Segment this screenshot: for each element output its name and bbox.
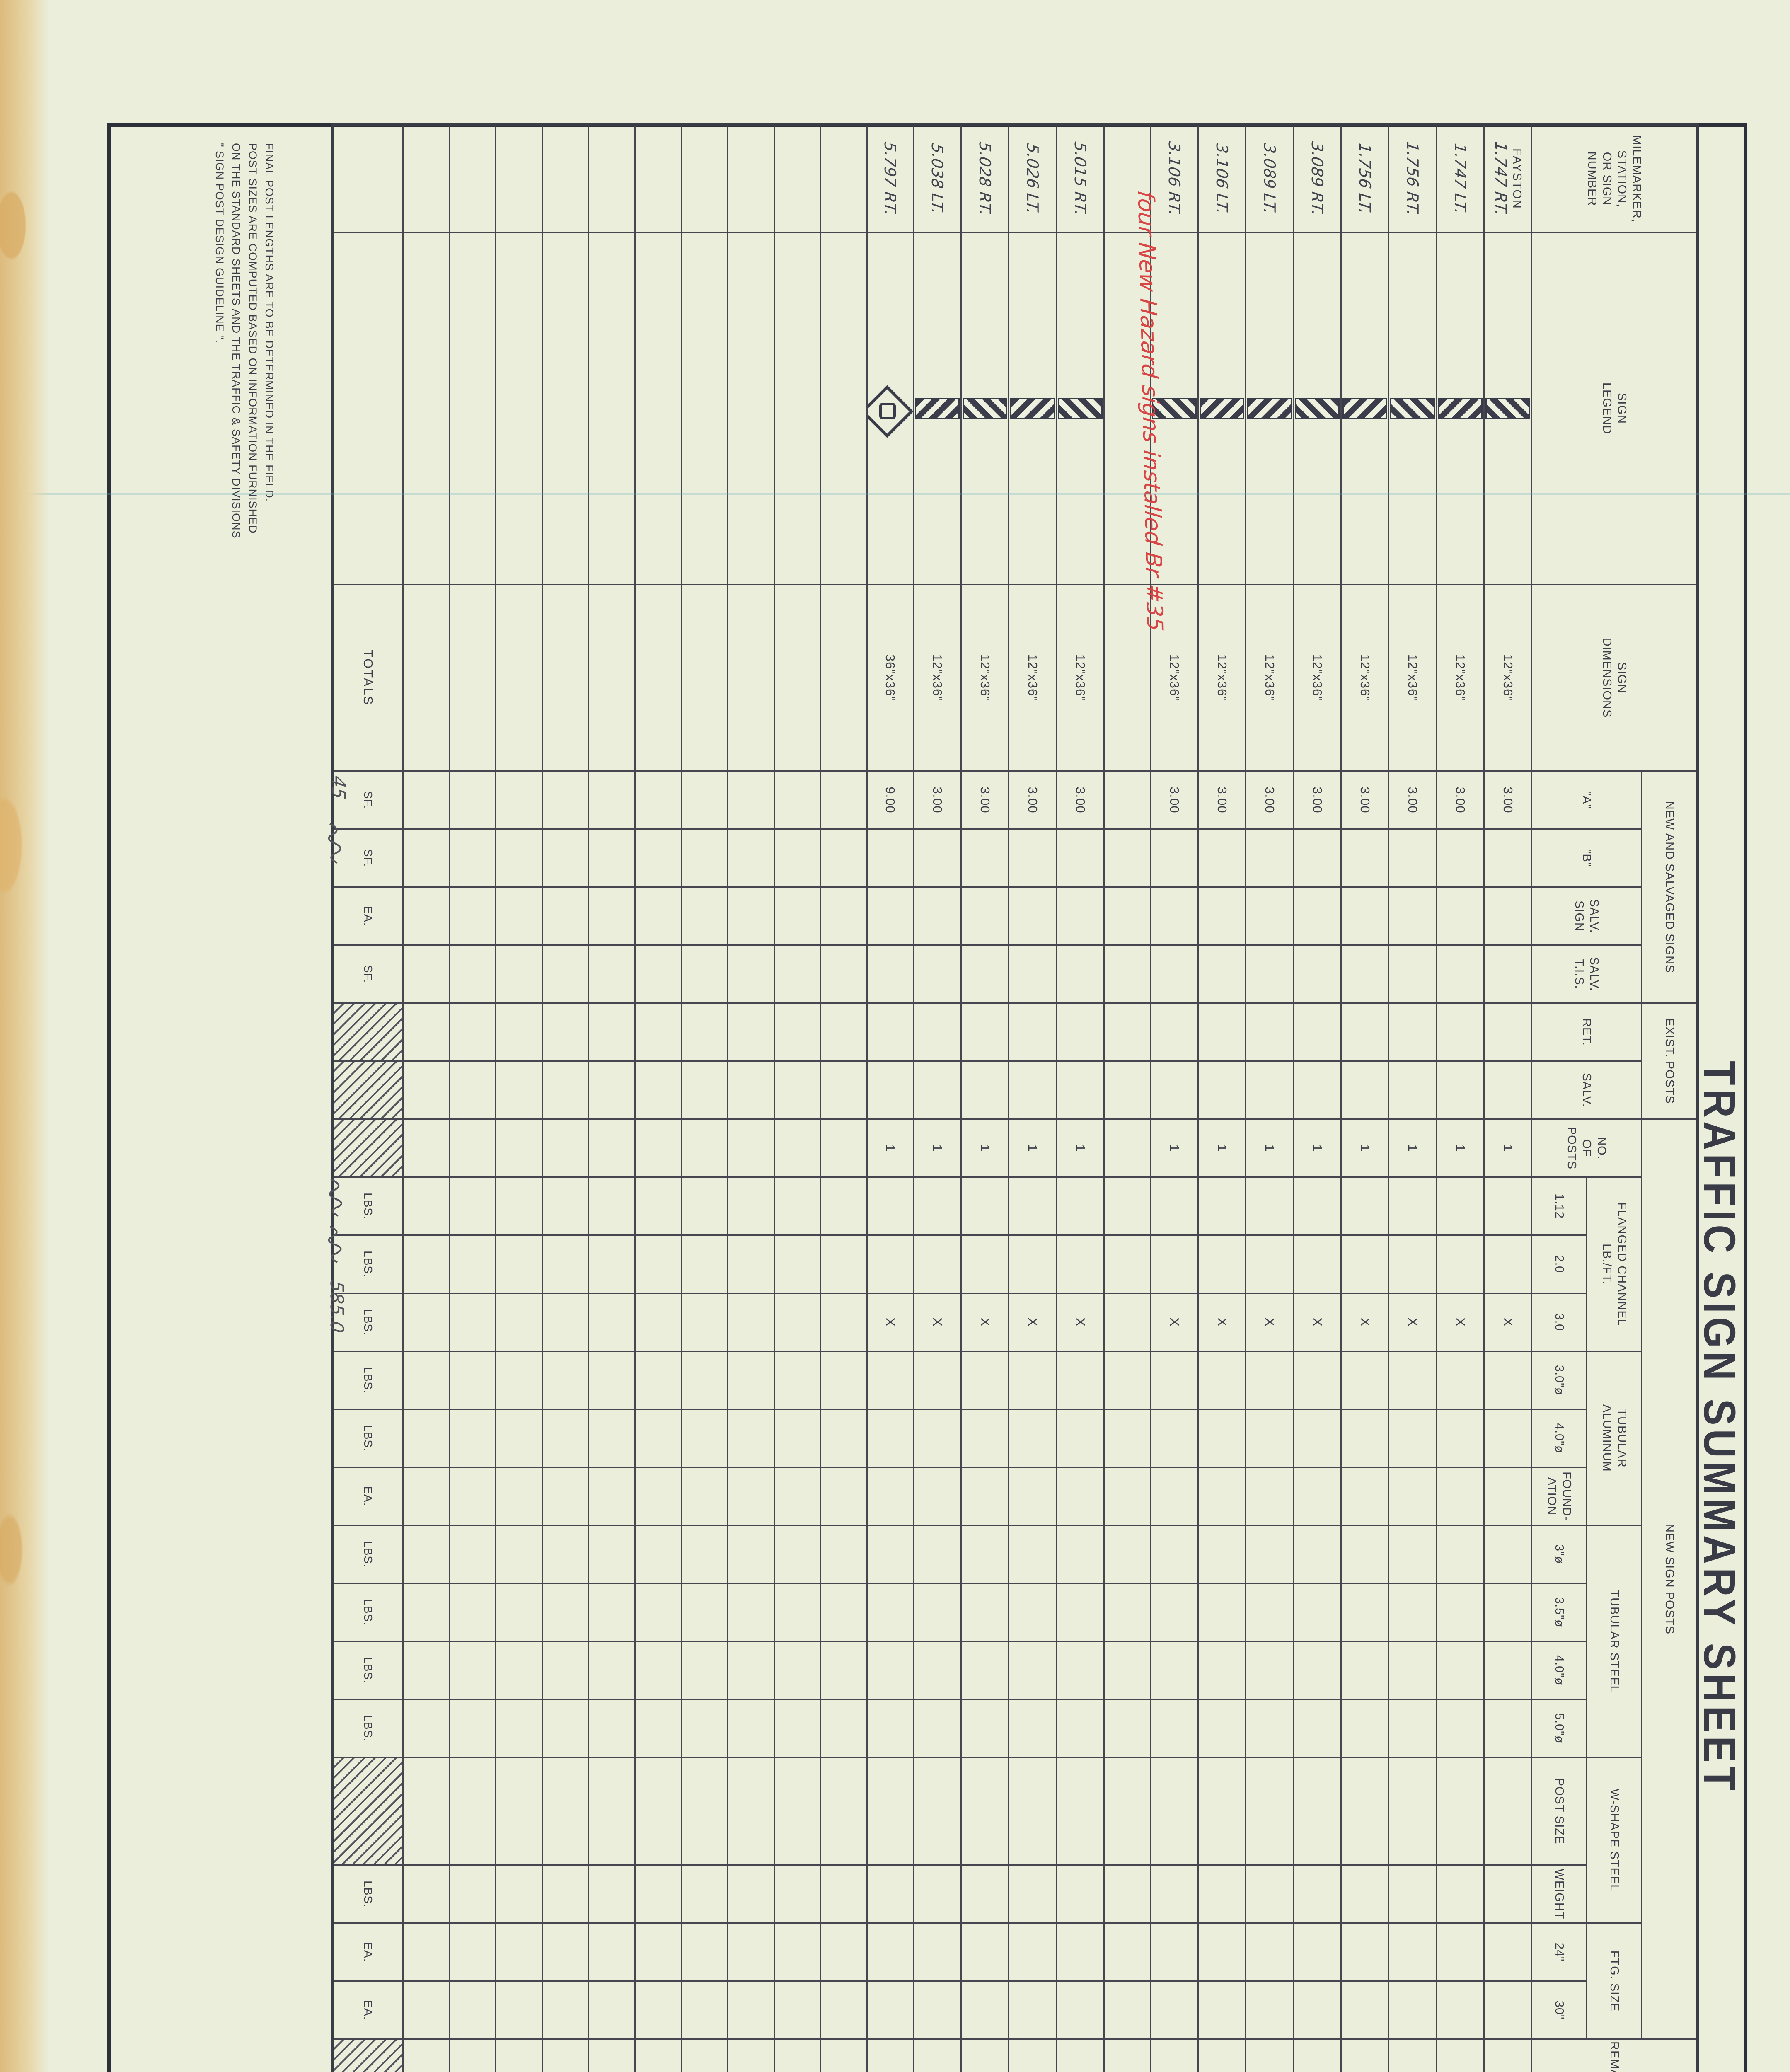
- town-label: FAYSTON: [1510, 128, 1524, 230]
- hazard-marker-icon: [1200, 398, 1244, 419]
- cell-post_size: [728, 1757, 774, 1865]
- hazard-marker-icon: [963, 398, 1007, 419]
- cell-nop: 1: [914, 1119, 961, 1177]
- col-ftg-30: 30": [1532, 1981, 1587, 2039]
- cell-mm: 1.756 RT.: [1389, 125, 1437, 232]
- cell-st40: [403, 1641, 450, 1699]
- table-row: [774, 125, 821, 2072]
- cell-post_size: [1057, 1757, 1104, 1865]
- cell-found: [496, 1467, 542, 1525]
- cell-st3: [1294, 1525, 1341, 1583]
- cell-post_size: [914, 1757, 961, 1865]
- cell-salv: [1294, 1061, 1341, 1119]
- cell-a: [682, 771, 728, 829]
- cell-mm: FAYSTON1.747 RT.: [1484, 125, 1532, 232]
- cell-st35: [450, 1583, 496, 1641]
- cell-st35: [914, 1583, 961, 1641]
- cell-salv_sign: [635, 887, 682, 945]
- cell-salv_tis: [682, 945, 728, 1003]
- cell-fc30: [542, 1293, 589, 1351]
- cell-mm: 3.106 LT.: [1198, 125, 1246, 232]
- cell-al40: [821, 1409, 867, 1467]
- cell-salv_tis: [821, 945, 867, 1003]
- cell-st35: [682, 1583, 728, 1641]
- cell-mm: [403, 125, 450, 232]
- cell-a: 3.00: [914, 771, 961, 829]
- cell-ftg30: [1057, 1981, 1104, 2039]
- cell-legend: [403, 232, 450, 585]
- cell-st35: [589, 1583, 635, 1641]
- totals-cell-post_size: [333, 1757, 403, 1865]
- note-line: FINAL POST LENGTHS ARE TO BE DETERMINED …: [261, 143, 278, 539]
- cell-al40: [867, 1409, 914, 1467]
- cell-st40: [728, 1641, 774, 1699]
- cell-fc30: X: [1246, 1293, 1294, 1351]
- cell-fc20: [1151, 1235, 1198, 1293]
- cell-weight: [635, 1865, 682, 1923]
- cell-fc20: [774, 1235, 821, 1293]
- cell-fc112: [682, 1177, 728, 1235]
- group-w-shape-steel: W-SHAPE STEEL: [1587, 1757, 1642, 1923]
- cell-legend: [1389, 232, 1437, 585]
- cell-st50: [867, 1699, 914, 1757]
- cell-salv_sign: [1104, 887, 1151, 945]
- cell-fc20: [961, 1235, 1009, 1293]
- page-title: TRAFFIC SIGN SUMMARY SHEET: [1693, 1061, 1744, 1794]
- cell-ftg30: [496, 1981, 542, 2039]
- cell-st3: [821, 1525, 867, 1583]
- cell-fc112: [867, 1177, 914, 1235]
- group-new-and-salvaged-signs: NEW AND SALVAGED SIGNS: [1642, 771, 1698, 1003]
- table-row: 3.106 LT.12"x36"3.001XE120: [1198, 125, 1246, 2072]
- cell-mm: [496, 125, 542, 232]
- cell-legend: [589, 232, 635, 585]
- cell-st50: [1484, 1699, 1532, 1757]
- cell-st35: [1198, 1583, 1246, 1641]
- cell-post_size: [1484, 1757, 1532, 1865]
- cell-st50: [728, 1699, 774, 1757]
- cell-ftg24: [450, 1923, 496, 1981]
- cell-ftg24: [1057, 1923, 1104, 1981]
- cell-salv_sign: [403, 887, 450, 945]
- col-ret: RET.: [1532, 1003, 1642, 1061]
- cell-weight: [1246, 1865, 1294, 1923]
- cell-ret: [682, 1003, 728, 1061]
- cell-st3: [1389, 1525, 1437, 1583]
- cell-found: [542, 1467, 589, 1525]
- cell-salv_sign: [821, 887, 867, 945]
- cell-st50: [1437, 1699, 1484, 1757]
- cell-st40: [961, 1641, 1009, 1699]
- cell-salv_sign: [774, 887, 821, 945]
- table-row: 1.756 LT.12"x36"3.001XE120: [1341, 125, 1389, 2072]
- cell-st50: [403, 1699, 450, 1757]
- totals-cell-al30: LBS.: [333, 1351, 403, 1409]
- cell-b: [496, 829, 542, 887]
- cell-post_size: [821, 1757, 867, 1865]
- cell-st50: [1104, 1699, 1151, 1757]
- cell-al30: [1341, 1351, 1389, 1409]
- cell-found: [1389, 1467, 1437, 1525]
- cell-ret: [1104, 1003, 1151, 1061]
- cell-fc20: [914, 1235, 961, 1293]
- milemarker-value: 3.106 RT.: [1165, 141, 1183, 217]
- cell-fc20: [867, 1235, 914, 1293]
- col-al-4-0: 4.0"ø: [1532, 1409, 1587, 1467]
- cell-st35: [1389, 1583, 1437, 1641]
- cell-post_size: [635, 1757, 682, 1865]
- cell-mm: [635, 125, 682, 232]
- cell-st50: [1198, 1699, 1246, 1757]
- cell-fc30: [450, 1293, 496, 1351]
- cell-frame: [1484, 2039, 1532, 2072]
- table-row: 3.089 LT.12"x36"3.001XE120: [1246, 125, 1294, 2072]
- table-row: [728, 125, 774, 2072]
- cell-frame: [542, 2039, 589, 2072]
- cell-al40: [1198, 1409, 1246, 1467]
- cell-mm: [589, 125, 635, 232]
- cell-ftg30: [1484, 1981, 1532, 2039]
- col-st-4-0: 4.0"ø: [1532, 1641, 1587, 1699]
- cell-salv_tis: [1437, 945, 1484, 1003]
- cell-found: [403, 1467, 450, 1525]
- cell-post_size: [496, 1757, 542, 1865]
- cell-salv_tis: [635, 945, 682, 1003]
- cell-legend: [542, 232, 589, 585]
- cell-al30: [1198, 1351, 1246, 1409]
- cell-frame: [867, 2039, 914, 2072]
- cell-al30: [682, 1351, 728, 1409]
- cell-a: 3.00: [1151, 771, 1198, 829]
- cell-al30: [496, 1351, 542, 1409]
- totals-cell-al40: LBS.: [333, 1409, 403, 1467]
- table-row: 1.756 RT.12"x36"3.001XE120: [1389, 125, 1437, 2072]
- cell-st40: [1389, 1641, 1437, 1699]
- cell-salv: [403, 1061, 450, 1119]
- cell-legend: [1341, 232, 1389, 585]
- cell-st50: [1389, 1699, 1437, 1757]
- cell-fc30: [682, 1293, 728, 1351]
- cell-ret: [1437, 1003, 1484, 1061]
- totals-cell-nop: [333, 1119, 403, 1177]
- cell-frame: [450, 2039, 496, 2072]
- cell-b: [961, 829, 1009, 887]
- cell-salv: [961, 1061, 1009, 1119]
- cell-ftg24: [635, 1923, 682, 1981]
- cell-dims: [821, 585, 867, 771]
- cell-found: [914, 1467, 961, 1525]
- totals-cell-dims: TOTALS: [333, 585, 403, 771]
- cell-ftg24: [867, 1923, 914, 1981]
- cell-salv: [450, 1061, 496, 1119]
- cell-fc112: [1484, 1177, 1532, 1235]
- cell-ftg24: [1294, 1923, 1341, 1981]
- cell-st50: [589, 1699, 635, 1757]
- cell-fc112: [589, 1177, 635, 1235]
- cell-fc20: [1389, 1235, 1437, 1293]
- table-row: [635, 125, 682, 2072]
- cell-weight: [961, 1865, 1009, 1923]
- cell-fc112: [542, 1177, 589, 1235]
- cell-al40: [1104, 1409, 1151, 1467]
- hazard-marker-icon: [1485, 398, 1530, 419]
- cell-st3: [1198, 1525, 1246, 1583]
- cell-legend: [1437, 232, 1484, 585]
- cell-al30: [867, 1351, 914, 1409]
- cell-weight: [1151, 1865, 1198, 1923]
- cell-ftg30: [1151, 1981, 1198, 2039]
- cell-nop: 1: [1341, 1119, 1389, 1177]
- col-salv: SALV.: [1532, 1061, 1642, 1119]
- cell-ftg24: [1389, 1923, 1437, 1981]
- cell-found: [961, 1467, 1009, 1525]
- cell-dims: [403, 585, 450, 771]
- cell-fc112: [774, 1177, 821, 1235]
- cell-fc30: X: [1198, 1293, 1246, 1351]
- landscape-sheet: TRAFFIC SIGN SUMMARY SHEET MILEMARKER, S…: [0, 0, 1790, 2072]
- cell-frame: [1009, 2039, 1057, 2072]
- cell-st40: [1484, 1641, 1532, 1699]
- cell-st50: [1246, 1699, 1294, 1757]
- cell-salv_tis: [1389, 945, 1437, 1003]
- cell-nop: [682, 1119, 728, 1177]
- cell-b: [682, 829, 728, 887]
- cell-nop: [635, 1119, 682, 1177]
- cell-legend: [821, 232, 867, 585]
- cell-st40: [682, 1641, 728, 1699]
- table-row: [589, 125, 635, 2072]
- cell-salv_tis: [914, 945, 961, 1003]
- cell-a: 3.00: [1198, 771, 1246, 829]
- table-row: 5.797 RT.36"x36"9.001X475' FROM END OF B…: [867, 125, 914, 2072]
- cell-b: [821, 829, 867, 887]
- cell-ret: [914, 1003, 961, 1061]
- cell-ftg30: [867, 1981, 914, 2039]
- milemarker-value: 5.026 LT.: [1023, 143, 1042, 215]
- cell-salv_tis: [1057, 945, 1104, 1003]
- cell-al40: [403, 1409, 450, 1467]
- totals-row: TOTALSSF.SF.EA.SF.LBS.LBS.LBS.LBS.LBS.EA…: [333, 125, 403, 2072]
- cell-ftg24: [542, 1923, 589, 1981]
- cell-frame: [821, 2039, 867, 2072]
- cell-fc30: X: [1484, 1293, 1532, 1351]
- cell-st3: [496, 1525, 542, 1583]
- cell-frame: [1437, 2039, 1484, 2072]
- cell-mm: [774, 125, 821, 232]
- cell-fc112: [403, 1177, 450, 1235]
- cell-post_size: [1246, 1757, 1294, 1865]
- cell-frame: [1057, 2039, 1104, 2072]
- cell-salv: [1246, 1061, 1294, 1119]
- cell-ftg30: [403, 1981, 450, 2039]
- cell-found: [821, 1467, 867, 1525]
- cell-ret: [635, 1003, 682, 1061]
- cell-salv_tis: [496, 945, 542, 1003]
- cell-al30: [589, 1351, 635, 1409]
- cell-mm: 5.026 LT.: [1009, 125, 1057, 232]
- cell-a: [635, 771, 682, 829]
- cell-weight: [403, 1865, 450, 1923]
- cell-dims: 12"x36": [1009, 585, 1057, 771]
- cell-post_size: [961, 1757, 1009, 1865]
- cell-nop: 1: [1294, 1119, 1341, 1177]
- cell-a: 3.00: [1437, 771, 1484, 829]
- table-row: 5.028 RT.12"x36"3.001XE120: [961, 125, 1009, 2072]
- cell-a: [821, 771, 867, 829]
- cell-ftg24: [728, 1923, 774, 1981]
- cell-found: [635, 1467, 682, 1525]
- cell-salv_tis: [1104, 945, 1151, 1003]
- cell-salv_sign: [728, 887, 774, 945]
- cell-frame: [1389, 2039, 1437, 2072]
- cell-st40: [774, 1641, 821, 1699]
- cell-fc30: [403, 1293, 450, 1351]
- group-exist-posts: EXIST. POSTS: [1642, 1003, 1698, 1119]
- cell-b: [867, 829, 914, 887]
- cell-al40: [589, 1409, 635, 1467]
- cell-st35: [1104, 1583, 1151, 1641]
- cell-dims: [542, 585, 589, 771]
- cell-ftg24: [403, 1923, 450, 1981]
- cell-ret: [821, 1003, 867, 1061]
- cell-frame: [1246, 2039, 1294, 2072]
- cell-st35: [496, 1583, 542, 1641]
- cell-ftg24: [961, 1923, 1009, 1981]
- cell-ftg24: [1341, 1923, 1389, 1981]
- cell-st3: [728, 1525, 774, 1583]
- aged-paper-blotches: [0, 0, 95, 2072]
- cell-weight: [542, 1865, 589, 1923]
- cell-st35: [774, 1583, 821, 1641]
- cell-st35: [1437, 1583, 1484, 1641]
- cell-al30: [1246, 1351, 1294, 1409]
- cell-fc112: [961, 1177, 1009, 1235]
- cell-salv: [914, 1061, 961, 1119]
- cell-al30: [542, 1351, 589, 1409]
- cell-ret: [1389, 1003, 1437, 1061]
- cell-al40: [1484, 1409, 1532, 1467]
- cell-a: 3.00: [961, 771, 1009, 829]
- cell-ftg30: [589, 1981, 635, 2039]
- table-row: 5.026 LT.12"x36"3.001XE120: [1009, 125, 1057, 2072]
- cell-mm: 3.089 RT.: [1294, 125, 1341, 232]
- hazard-marker-icon: [1247, 398, 1292, 419]
- cell-legend: [1009, 232, 1057, 585]
- cell-mm: 5.015 RT.: [1057, 125, 1104, 232]
- cell-found: [589, 1467, 635, 1525]
- cell-st35: [1057, 1583, 1104, 1641]
- cell-fc20: [1198, 1235, 1246, 1293]
- cell-a: 3.00: [1294, 771, 1341, 829]
- cell-ret: [496, 1003, 542, 1061]
- cell-st40: [1246, 1641, 1294, 1699]
- cell-frame: [403, 2039, 450, 2072]
- cell-post_size: [542, 1757, 589, 1865]
- handwritten-total-45: 45: [328, 775, 349, 800]
- cell-salv: [496, 1061, 542, 1119]
- cell-mm: 1.756 LT.: [1341, 125, 1389, 232]
- milemarker-value: 1.747 LT.: [1451, 143, 1469, 215]
- cell-post_size: [1104, 1757, 1151, 1865]
- cell-mm: 5.028 RT.: [961, 125, 1009, 232]
- cell-weight: [1198, 1865, 1246, 1923]
- cell-st40: [821, 1641, 867, 1699]
- cell-found: [728, 1467, 774, 1525]
- milemarker-value: 5.797 RT.: [881, 141, 900, 217]
- cell-nop: 1: [1437, 1119, 1484, 1177]
- col-a: "A": [1532, 771, 1642, 829]
- cell-dims: 12"x36": [1294, 585, 1341, 771]
- cell-b: [774, 829, 821, 887]
- cell-b: [728, 829, 774, 887]
- cell-ret: [403, 1003, 450, 1061]
- cell-ret: [774, 1003, 821, 1061]
- cell-found: [1151, 1467, 1198, 1525]
- cell-salv: [589, 1061, 635, 1119]
- cell-found: [1198, 1467, 1246, 1525]
- cell-nop: 1: [1151, 1119, 1198, 1177]
- cell-fc30: [774, 1293, 821, 1351]
- cell-salv: [542, 1061, 589, 1119]
- totals-cell-found: EA.: [333, 1467, 403, 1525]
- cell-found: [1104, 1467, 1151, 1525]
- cell-st3: [961, 1525, 1009, 1583]
- cell-ftg30: [635, 1981, 682, 2039]
- cell-fc112: [821, 1177, 867, 1235]
- cell-ret: [450, 1003, 496, 1061]
- cell-st40: [1104, 1641, 1151, 1699]
- cell-ftg24: [1484, 1923, 1532, 1981]
- cell-weight: [1437, 1865, 1484, 1923]
- cell-a: [1104, 771, 1151, 829]
- cell-st3: [682, 1525, 728, 1583]
- cell-salv: [635, 1061, 682, 1119]
- cell-salv: [1009, 1061, 1057, 1119]
- group-flanged-channel: FLANGED CHANNEL LB./FT.: [1587, 1177, 1642, 1351]
- cell-mm: [450, 125, 496, 232]
- cell-frame: [635, 2039, 682, 2072]
- cell-fc30: X: [1009, 1293, 1057, 1351]
- cell-ftg30: [1246, 1981, 1294, 2039]
- milemarker-value: 5.038 LT.: [928, 143, 946, 215]
- summary-table: MILEMARKER, STATION, OR SIGN NUMBERSIGN …: [331, 123, 1699, 2072]
- cell-frame: [1341, 2039, 1389, 2072]
- cell-a: [728, 771, 774, 829]
- cell-frame: [1294, 2039, 1341, 2072]
- cell-st50: [774, 1699, 821, 1757]
- cell-salv_tis: [1009, 945, 1057, 1003]
- cell-fc112: [1389, 1177, 1437, 1235]
- cell-b: [1057, 829, 1104, 887]
- cell-dims: 12"x36": [961, 585, 1009, 771]
- cell-al30: [821, 1351, 867, 1409]
- cell-found: [774, 1467, 821, 1525]
- cell-a: 3.00: [1341, 771, 1389, 829]
- cell-fc112: [1009, 1177, 1057, 1235]
- cell-salv_tis: [1341, 945, 1389, 1003]
- cell-dims: 12"x36": [1437, 585, 1484, 771]
- cell-al30: [1484, 1351, 1532, 1409]
- cell-st3: [450, 1525, 496, 1583]
- cell-b: [1198, 829, 1246, 887]
- diamond-symbol: [880, 403, 896, 419]
- cell-fc112: [1151, 1177, 1198, 1235]
- cell-salv_sign: [589, 887, 635, 945]
- cell-dims: 12"x36": [1198, 585, 1246, 771]
- cell-ftg24: [914, 1923, 961, 1981]
- cell-ftg30: [450, 1981, 496, 2039]
- cell-salv: [1437, 1061, 1484, 1119]
